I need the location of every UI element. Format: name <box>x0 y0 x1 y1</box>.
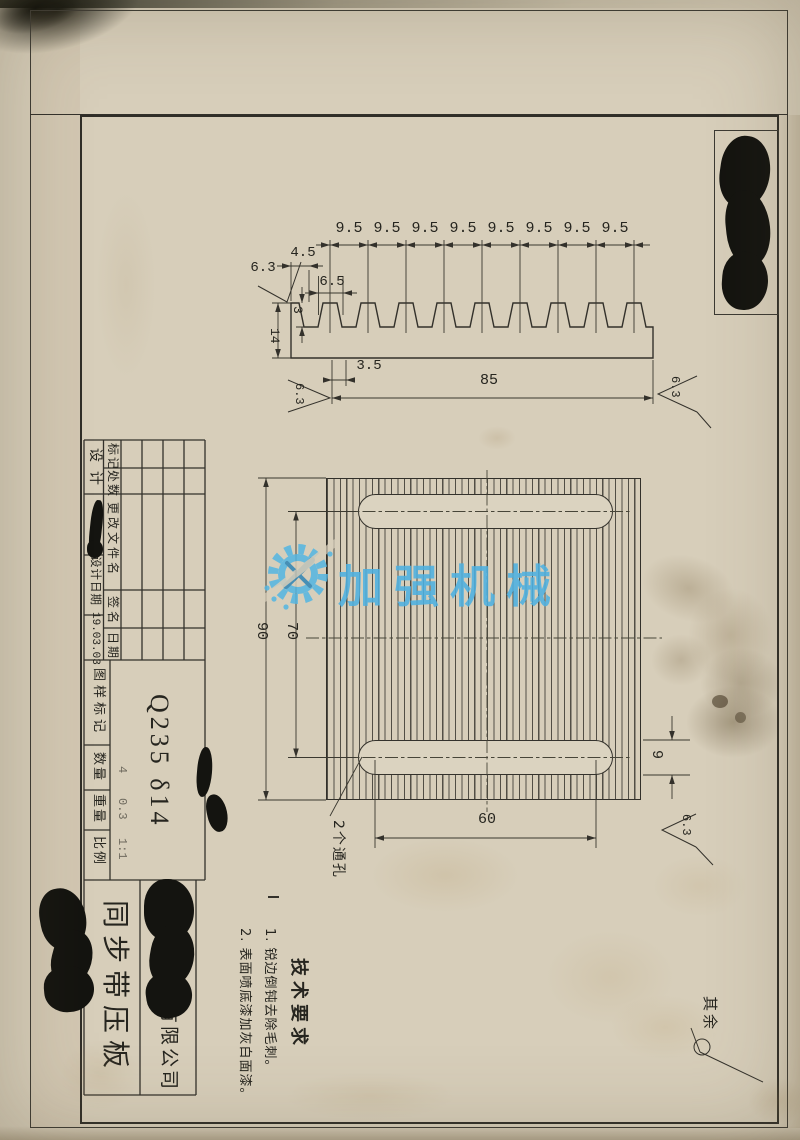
qty-label: 数量 <box>92 752 105 782</box>
finish-right-label: 6.3 <box>669 376 681 398</box>
tech-req-item: 2. 表面喷底漆加灰白面漆。 <box>238 928 251 1102</box>
tech-req-title: 技术要求 <box>289 958 307 1050</box>
scale-value: 1:1 <box>116 838 128 860</box>
top-view-linework <box>240 205 740 445</box>
weight-value: 0.3 <box>116 798 128 820</box>
redaction-mark <box>87 540 103 558</box>
dim-6-5-label: 6.5 <box>317 275 347 290</box>
design-date-value: 19.03.03 <box>89 612 100 665</box>
dim-70-label: 70 <box>284 622 299 640</box>
pitch-dim-label: 9.5 <box>411 221 439 237</box>
remainder-finish-icon <box>680 1020 775 1090</box>
pitch-dim-label: 9.5 <box>563 221 591 237</box>
pitch-dim-label: 9.5 <box>335 221 363 237</box>
qty-value: 4 <box>116 766 128 773</box>
pitch-dim-label: 9.5 <box>373 221 401 237</box>
rev-file-label: 更改文件名 <box>107 502 119 577</box>
dim-9-label: 9 <box>649 750 664 759</box>
tick-mark <box>268 896 279 898</box>
pitch-dim-label: 9.5 <box>449 221 477 237</box>
holes-note-label: 2个通孔 <box>331 820 345 879</box>
weight-label: 重量 <box>92 794 105 824</box>
dim-90-label: 90 <box>254 622 269 640</box>
drawing-mark-label: 图样标记 <box>92 668 105 736</box>
watermark-gear-icon <box>260 536 336 612</box>
watermark-text: 加强机械 <box>338 550 562 615</box>
drawing-sheet: 9.5 9.5 9.5 9.5 9.5 9.5 9.5 9.5 4.5 6.5 … <box>0 0 800 1140</box>
scale-label: 比例 <box>92 836 105 866</box>
design-label: 设计 <box>88 448 102 494</box>
rev-sign-label: 签名 <box>107 596 119 626</box>
material-label: Q235 δ14 <box>146 694 172 829</box>
rev-count-label: 处数 <box>107 470 119 498</box>
rev-mark-label: 标记 <box>107 443 119 471</box>
finish-bottom-left-label: 6.3 <box>293 383 305 405</box>
dim-4-5-label: 4.5 <box>288 246 318 261</box>
dim-60-label: 60 <box>470 812 504 828</box>
rev-date-label: 日期 <box>107 632 119 660</box>
finish-top-label: 6.3 <box>246 261 280 276</box>
stain <box>0 1126 800 1140</box>
finish-plan-label: 6.3 <box>680 814 692 836</box>
dim-3-5-label: 3.5 <box>352 359 386 374</box>
stain <box>0 0 800 8</box>
part-name-label: 同步带压板 <box>101 900 129 1075</box>
tech-req-item: 1. 锐边倒钝去除毛刺。 <box>263 928 276 1074</box>
frame-line <box>30 114 788 115</box>
design-date-label: 设计日期 <box>90 556 102 606</box>
pitch-dim-label: 9.5 <box>487 221 515 237</box>
pitch-dim-label: 9.5 <box>525 221 553 237</box>
dim-85-label: 85 <box>474 373 504 389</box>
dim-3-label: 3 <box>291 306 304 314</box>
pitch-dim-label: 9.5 <box>601 221 629 237</box>
surface-finish-icon <box>658 376 711 428</box>
dim-14-label: 14 <box>268 328 281 344</box>
